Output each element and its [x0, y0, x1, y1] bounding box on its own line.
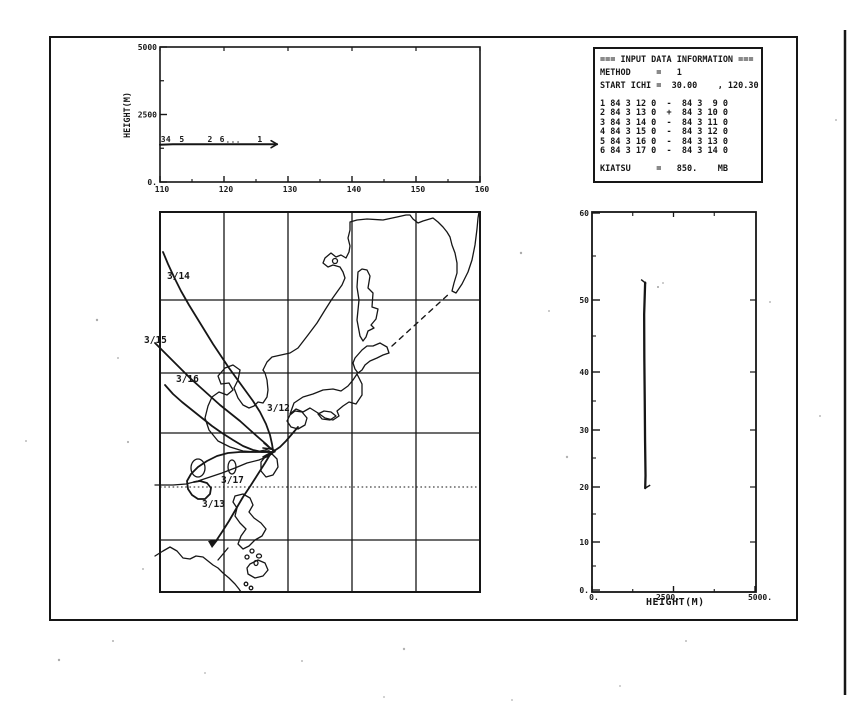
trajectory-date-label-3-17: 3/17 [221, 475, 244, 486]
height-profile-dotted-segment [232, 141, 234, 143]
left-plot-x-tick-label: 140 [347, 185, 362, 194]
island-sulu-islet-2 [249, 586, 253, 590]
right-plot-x-tick-label: 5000. [748, 593, 772, 602]
speck [96, 319, 98, 321]
left-plot-x-tick-label: 120 [219, 185, 234, 194]
speck [301, 660, 303, 662]
left-plot-frame [160, 47, 480, 182]
latitude-profile-line [644, 283, 645, 489]
speck [112, 640, 114, 642]
left-plot-y-tick-label: 5000 [138, 43, 157, 52]
speck [520, 252, 522, 254]
trajectory-start-point [272, 449, 276, 453]
info-start-position-line: START ICHI = 30.00 , 120.30 [595, 80, 761, 93]
right-plot-y-tick-label: 10 [579, 538, 589, 547]
speck [819, 415, 821, 417]
right-plot-y-tick-label: 50 [579, 296, 589, 305]
trajectory-date-label-3-12: 3/12 [267, 403, 290, 414]
coastline-china-coast-through-start-point [155, 365, 274, 485]
info-trajectory-date-rows: 1 84 3 12 0 - 84 3 9 02 84 3 13 0 + 84 3… [595, 100, 761, 156]
right-plot-frame [592, 212, 756, 592]
speck [769, 301, 771, 303]
left-plot-y-tick-label: 2500 [138, 111, 157, 120]
height-profile-point-label: 6 [220, 135, 225, 144]
coastline-hokkaido [353, 343, 389, 373]
trajectory-date-label-3-14: 3/14 [167, 271, 190, 282]
traj-3-12 [274, 427, 298, 451]
height-profile-point-label: 5 [179, 135, 184, 144]
height-profile-point-label: 4 [166, 135, 171, 144]
kuril-islands-dashed-line [392, 293, 450, 346]
speck [142, 568, 144, 570]
left-plot-x-tick-label: 130 [283, 185, 298, 194]
speck [662, 282, 664, 284]
coastline-palawan [218, 548, 228, 560]
height-profile-dotted-segment [227, 141, 229, 143]
right-plot-x-axis-title: HEIGHT(M) [646, 597, 705, 608]
speck [204, 672, 206, 674]
printout-page: 0.250050001101201301401501603452610.1020… [0, 0, 848, 712]
speck [548, 310, 550, 312]
speck [127, 441, 129, 443]
right-plot-x-tick-label: 0. [589, 593, 599, 602]
speck [58, 659, 60, 661]
right-plot-y-tick-label: 30 [579, 426, 589, 435]
right-plot-y-tick-label: 20 [579, 483, 589, 492]
trajectory-date-label-3-13: 3/13 [202, 499, 225, 510]
left-plot-x-tick-label: 110 [155, 185, 170, 194]
map-frame [160, 212, 480, 592]
left-plot-x-tick-label: 160 [475, 185, 490, 194]
speck [685, 640, 687, 642]
speck [566, 456, 568, 458]
speck [403, 648, 405, 650]
left-plot-y-axis-title: HEIGHT(M) [123, 79, 133, 151]
speck [511, 699, 513, 701]
trajectory-date-label-3-15: 3/15 [144, 335, 167, 346]
info-box-title: === INPUT DATA INFORMATION === [595, 54, 761, 67]
island-visayas-islet-2 [257, 554, 262, 558]
left-plot-x-tick-label: 150 [411, 185, 426, 194]
speck [835, 119, 837, 121]
speck [619, 685, 621, 687]
coastline-borneo [155, 547, 241, 592]
right-plot-y-tick-label: 40 [579, 368, 589, 377]
speck [657, 286, 659, 288]
trajectory-date-label-3-16: 3/16 [176, 374, 199, 385]
height-profile-dotted-segment [237, 141, 239, 143]
island-amur-islet [333, 259, 338, 264]
right-plot-y-tick-label: 0. [579, 586, 589, 595]
speck [25, 440, 27, 442]
coastline-honshu [290, 374, 362, 420]
coastline-korea-peninsula [234, 370, 268, 408]
speck [117, 357, 119, 359]
input-data-info-box: === INPUT DATA INFORMATION === METHOD = … [593, 47, 763, 183]
right-plot-y-tick-label: 60 [579, 209, 589, 218]
info-pressure-line: KIATSU = 850. MB [595, 163, 761, 176]
traj-3-16 [165, 385, 269, 452]
island-visayas-islet-1 [250, 549, 254, 553]
info-data-row: 6 84 3 17 0 - 84 3 14 0 [595, 147, 761, 156]
coastline-sakhalin [357, 269, 378, 341]
speck [383, 696, 385, 698]
info-method-line: METHOD = 1 [595, 67, 761, 80]
height-profile-point-label: 1 [257, 135, 262, 144]
island-cheju-island [228, 460, 236, 474]
island-sulu-islet-1 [244, 582, 248, 586]
height-profile-point-label: 2 [208, 135, 213, 144]
island-visayas-islet-3 [245, 555, 249, 559]
coastline-luzon [233, 494, 266, 549]
height-profile-line [160, 144, 277, 145]
